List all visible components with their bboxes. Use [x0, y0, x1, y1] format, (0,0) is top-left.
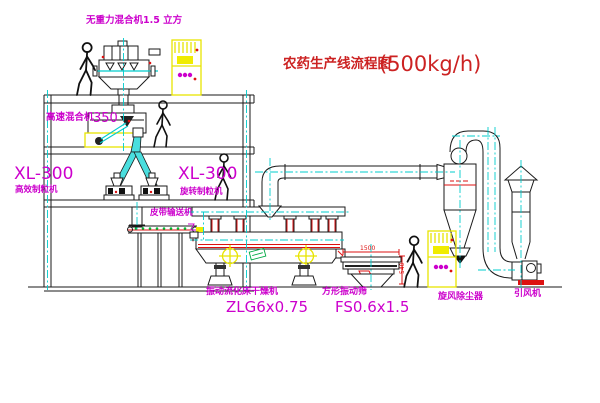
control-cabinet-2 [428, 231, 456, 287]
diagram-canvas: 无重力混合机1.5 立方 农药生产线流程图 (500kg/h) 高速混合机 35… [0, 0, 600, 403]
label-screen-name: 方形振动筛 [322, 285, 367, 297]
granulator-right [139, 173, 169, 200]
label-granulator-left-model: XL-300 [14, 164, 73, 184]
pesticide-flow-diagram: 无重力混合机1.5 立方 农药生产线流程图 (500kg/h) 高速混合机 35… [0, 0, 600, 403]
granulator-left [104, 173, 134, 200]
label-dryer-name: 振动流化床干燥机 [206, 285, 278, 297]
button-dot [178, 73, 182, 77]
red-indicator-dot [194, 78, 197, 81]
vibrating-screen [341, 249, 405, 287]
fluid-bed-dryer [188, 207, 345, 285]
label-belt-conveyor: 皮带输送机 [149, 207, 193, 218]
label-fan: 引风机 [514, 287, 541, 299]
button-dot [183, 73, 187, 77]
label-screen-model: FS0.6x1.5 [335, 298, 409, 316]
red-indicator-dot [450, 270, 453, 273]
red-indicator-dot [451, 239, 454, 242]
button-dot [188, 73, 192, 77]
dim-screen-width: 1500 [360, 245, 375, 252]
button-dot [434, 265, 438, 269]
label-granulator-right-model: XL-300 [178, 164, 237, 184]
induced-draft-fan [512, 261, 544, 285]
gravity-free-mixer [93, 41, 160, 113]
red-indicator-dot [102, 56, 105, 59]
label-gravity-mixer: 无重力混合机1.5 立方 [85, 14, 183, 26]
label-dryer-model: ZLG6x0.75 [226, 298, 308, 316]
label-high-speed-mixer: 高速混合机 [46, 111, 94, 123]
label-granulator-left-name: 高效制粒机 [15, 184, 58, 195]
button-dot [444, 265, 448, 269]
red-indicator-dot [196, 49, 199, 52]
label-granulator-right-name: 旋转制粒机 [179, 186, 223, 197]
fan-base [518, 280, 544, 285]
red-indicator-dot [128, 120, 131, 123]
control-cabinet-1 [172, 40, 201, 95]
red-indicator-dot [149, 62, 152, 65]
label-high-speed-mixer-model: 350 [93, 111, 118, 126]
dim-screen-height: 540 [399, 262, 406, 274]
label-cyclone: 旋风除尘器 [437, 290, 484, 302]
worker-figure [404, 236, 422, 287]
conveyor-rollers [135, 227, 194, 230]
worker-figure [154, 101, 170, 147]
dryer-legs [208, 263, 316, 285]
worker-figure [77, 43, 95, 95]
diagram-title: 农药生产线流程图 [282, 55, 391, 72]
button-dot [439, 265, 443, 269]
diagram-capacity: (500kg/h) [379, 52, 481, 76]
belt-conveyor [128, 226, 198, 287]
